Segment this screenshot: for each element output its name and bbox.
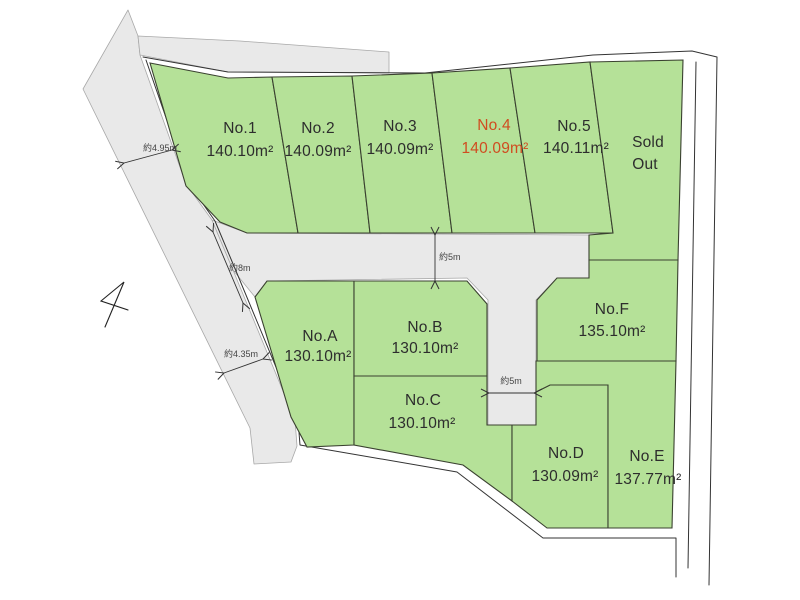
lot-soldout-line2-label: Out — [632, 156, 658, 173]
lot-no3-area-label: 140.09m² — [366, 141, 433, 158]
measure-label-4-95m: 約4.95m — [143, 142, 177, 153]
lot-no2-area-label: 140.09m² — [284, 143, 351, 160]
lot-noC-area-label: 130.10m² — [388, 415, 455, 432]
north-arrow-icon — [101, 282, 128, 327]
lot-soldout-line1-label: Sold — [632, 134, 664, 151]
lot-noD-name-label: No.D — [548, 445, 584, 462]
lot-noD-area-label: 130.09m² — [531, 468, 598, 485]
lot-noA-name-label: No.A — [302, 328, 338, 345]
measure-label-5m-road: 約5m — [439, 251, 461, 262]
boundary-right-inner — [688, 62, 696, 568]
lot-noE-area-label: 137.77m² — [614, 471, 681, 488]
plot-map-canvas: 約4.95m 約8m 約5m 約4.35m 約5m No.1 140.10m² … — [0, 0, 800, 600]
lot-noB-area-label: 130.10m² — [391, 340, 458, 357]
measure-label-5m-stub: 約5m — [500, 375, 522, 386]
lot-no1-name-label: No.1 — [223, 120, 257, 137]
lot-no3-name-label: No.3 — [383, 118, 417, 135]
measure-label-8m: 約8m — [229, 262, 251, 273]
lot-no4-area-label: 140.09m² — [461, 140, 528, 157]
lot-noC-name-label: No.C — [405, 392, 441, 409]
measure-label-4-35m: 約4.35m — [224, 348, 258, 359]
lot-no2-name-label: No.2 — [301, 120, 335, 137]
lot-no4-name-label: No.4 — [477, 117, 511, 134]
lot-noA-area-label: 130.10m² — [284, 348, 351, 365]
lot-noF-area-label: 135.10m² — [578, 323, 645, 340]
lot-noB-name-label: No.B — [407, 319, 442, 336]
lot-noE-name-label: No.E — [629, 448, 664, 465]
lot-no5-area-label: 140.11m² — [543, 140, 609, 157]
lot-no5-name-label: No.5 — [557, 118, 591, 135]
lot-noF-name-label: No.F — [595, 301, 629, 318]
plot-map: 約4.95m 約8m 約5m 約4.35m 約5m No.1 140.10m² … — [0, 0, 800, 600]
lot-no1-area-label: 140.10m² — [206, 143, 273, 160]
